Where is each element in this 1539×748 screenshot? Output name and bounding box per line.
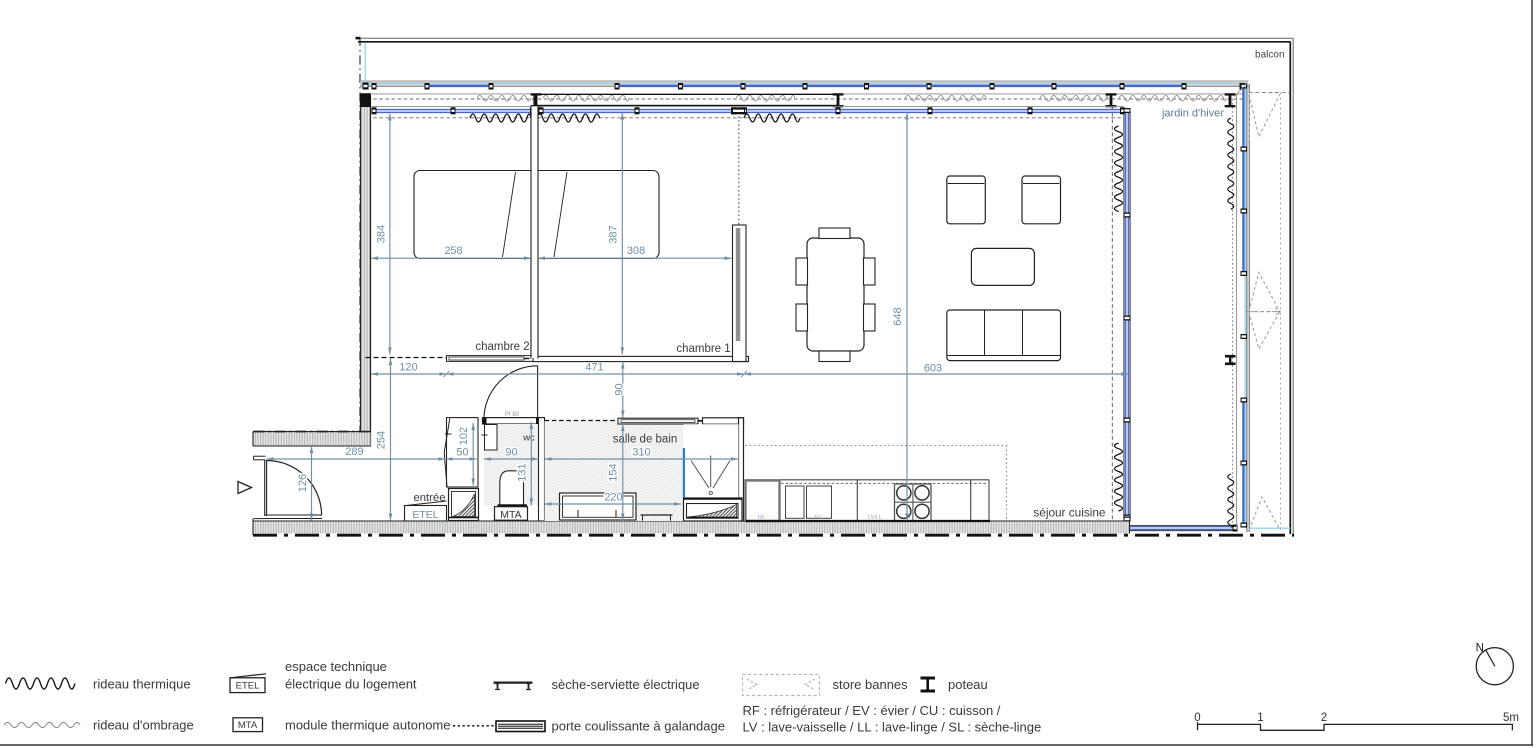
svg-text:50: 50 <box>456 447 468 459</box>
svg-text:648: 648 <box>892 307 904 325</box>
svg-text:poteau: poteau <box>948 677 988 692</box>
svg-text:471: 471 <box>585 362 603 374</box>
svg-text:90: 90 <box>505 447 517 459</box>
svg-text:384: 384 <box>375 225 387 243</box>
svg-text:0: 0 <box>1194 712 1200 724</box>
svg-text:90: 90 <box>614 383 626 395</box>
svg-text:387: 387 <box>607 225 619 243</box>
svg-text:102: 102 <box>458 427 470 445</box>
svg-text:espace technique: espace technique <box>285 659 387 674</box>
svg-text:310: 310 <box>632 447 650 459</box>
svg-text:254: 254 <box>375 431 387 449</box>
svg-text:RF: RF <box>758 515 766 521</box>
svg-text:chambre 2: chambre 2 <box>475 341 529 353</box>
svg-text:MTA: MTA <box>500 509 521 521</box>
svg-text:jardin d'hiver: jardin d'hiver <box>1161 108 1224 120</box>
svg-text:module thermique autonome: module thermique autonome <box>285 718 451 733</box>
svg-text:LV/LL: LV/LL <box>868 514 882 520</box>
svg-text:rideau thermique: rideau thermique <box>93 677 191 692</box>
svg-text:électrique du logement: électrique du logement <box>285 677 417 692</box>
svg-text:154: 154 <box>608 463 620 481</box>
svg-text:2: 2 <box>1321 712 1327 724</box>
svg-text:258: 258 <box>444 245 462 257</box>
svg-text:PI 80: PI 80 <box>505 412 520 418</box>
svg-text:289: 289 <box>345 446 363 458</box>
svg-text:220: 220 <box>604 492 622 504</box>
svg-text:120: 120 <box>399 362 417 374</box>
svg-text:chambre 1: chambre 1 <box>676 343 730 355</box>
svg-text:sèche-serviette électrique: sèche-serviette électrique <box>552 677 700 692</box>
svg-text:ETEL: ETEL <box>412 509 438 521</box>
svg-text:store bannes: store bannes <box>833 677 909 692</box>
svg-text:balcon: balcon <box>1255 50 1284 61</box>
svg-text:ETEL: ETEL <box>236 680 260 691</box>
svg-text:5m: 5m <box>1503 712 1519 724</box>
svg-text:MTA: MTA <box>238 720 258 731</box>
svg-text:EV: EV <box>814 515 822 521</box>
svg-text:rideau d'ombrage: rideau d'ombrage <box>93 718 194 733</box>
svg-text:1: 1 <box>1257 712 1263 724</box>
svg-text:porte coulissante à galandage: porte coulissante à galandage <box>552 719 725 734</box>
svg-text:séjour cuisine: séjour cuisine <box>1033 506 1106 520</box>
svg-text:131: 131 <box>516 463 528 481</box>
svg-text:126: 126 <box>297 474 309 492</box>
svg-text:603: 603 <box>924 363 942 375</box>
svg-text:N: N <box>1476 643 1484 655</box>
svg-text:RF : réfrigérateur / EV : évie: RF : réfrigérateur / EV : évier / CU : c… <box>743 703 1001 718</box>
svg-text:LV : lave-vaisselle / LL : lav: LV : lave-vaisselle / LL : lave-linge / … <box>743 720 1042 735</box>
svg-text:wc: wc <box>522 432 535 443</box>
svg-text:entrée: entrée <box>413 492 445 504</box>
svg-text:308: 308 <box>627 245 645 257</box>
